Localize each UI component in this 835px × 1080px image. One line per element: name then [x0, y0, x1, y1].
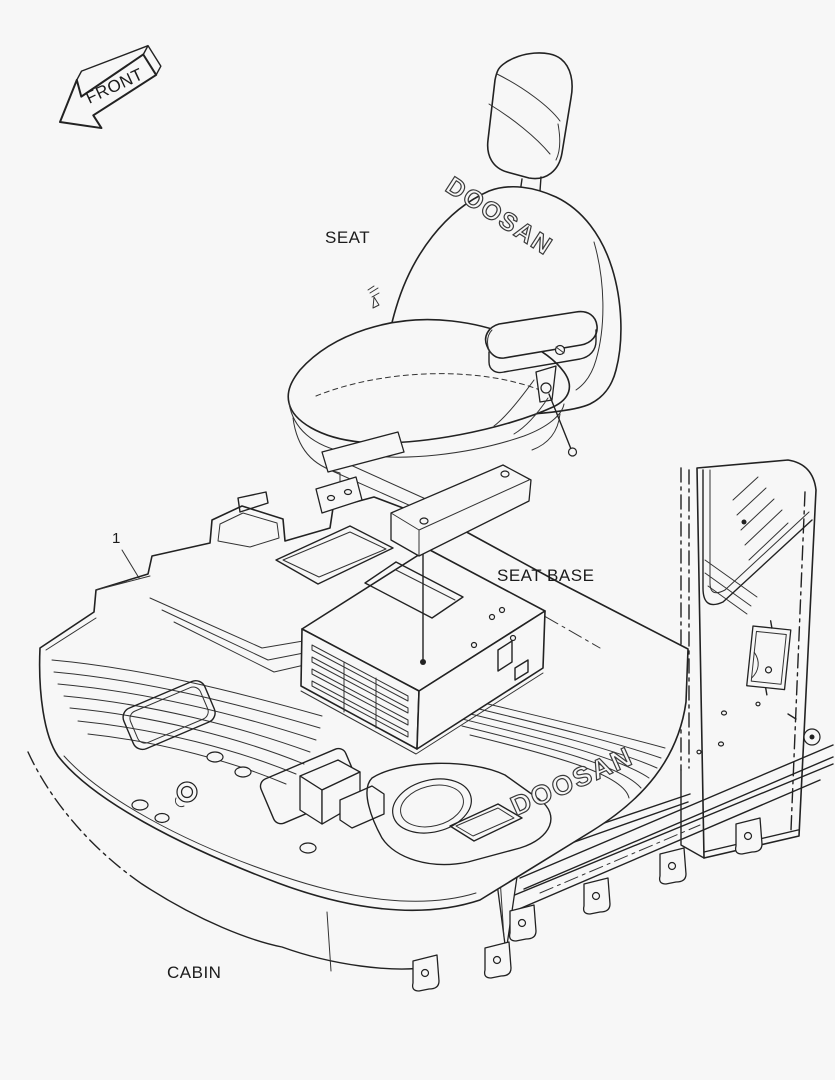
front-direction-arrow: FRONT [44, 40, 174, 143]
diagram-page: FRONT [0, 0, 835, 1080]
seat-label: SEAT [325, 228, 370, 247]
seat-base-label: SEAT BASE [497, 566, 594, 585]
cabin-label: CABIN [167, 963, 221, 982]
cabin-section-tick [327, 912, 331, 971]
wall-bracket-plate [746, 619, 792, 697]
parts-diagram-canvas: FRONT [0, 0, 835, 1080]
callout-1-label: 1 [112, 530, 120, 547]
seat: DOOSAN [288, 53, 621, 556]
seat-headrest [488, 53, 572, 193]
seat-recline-lever [368, 286, 379, 308]
callout-1-leader [122, 550, 139, 578]
